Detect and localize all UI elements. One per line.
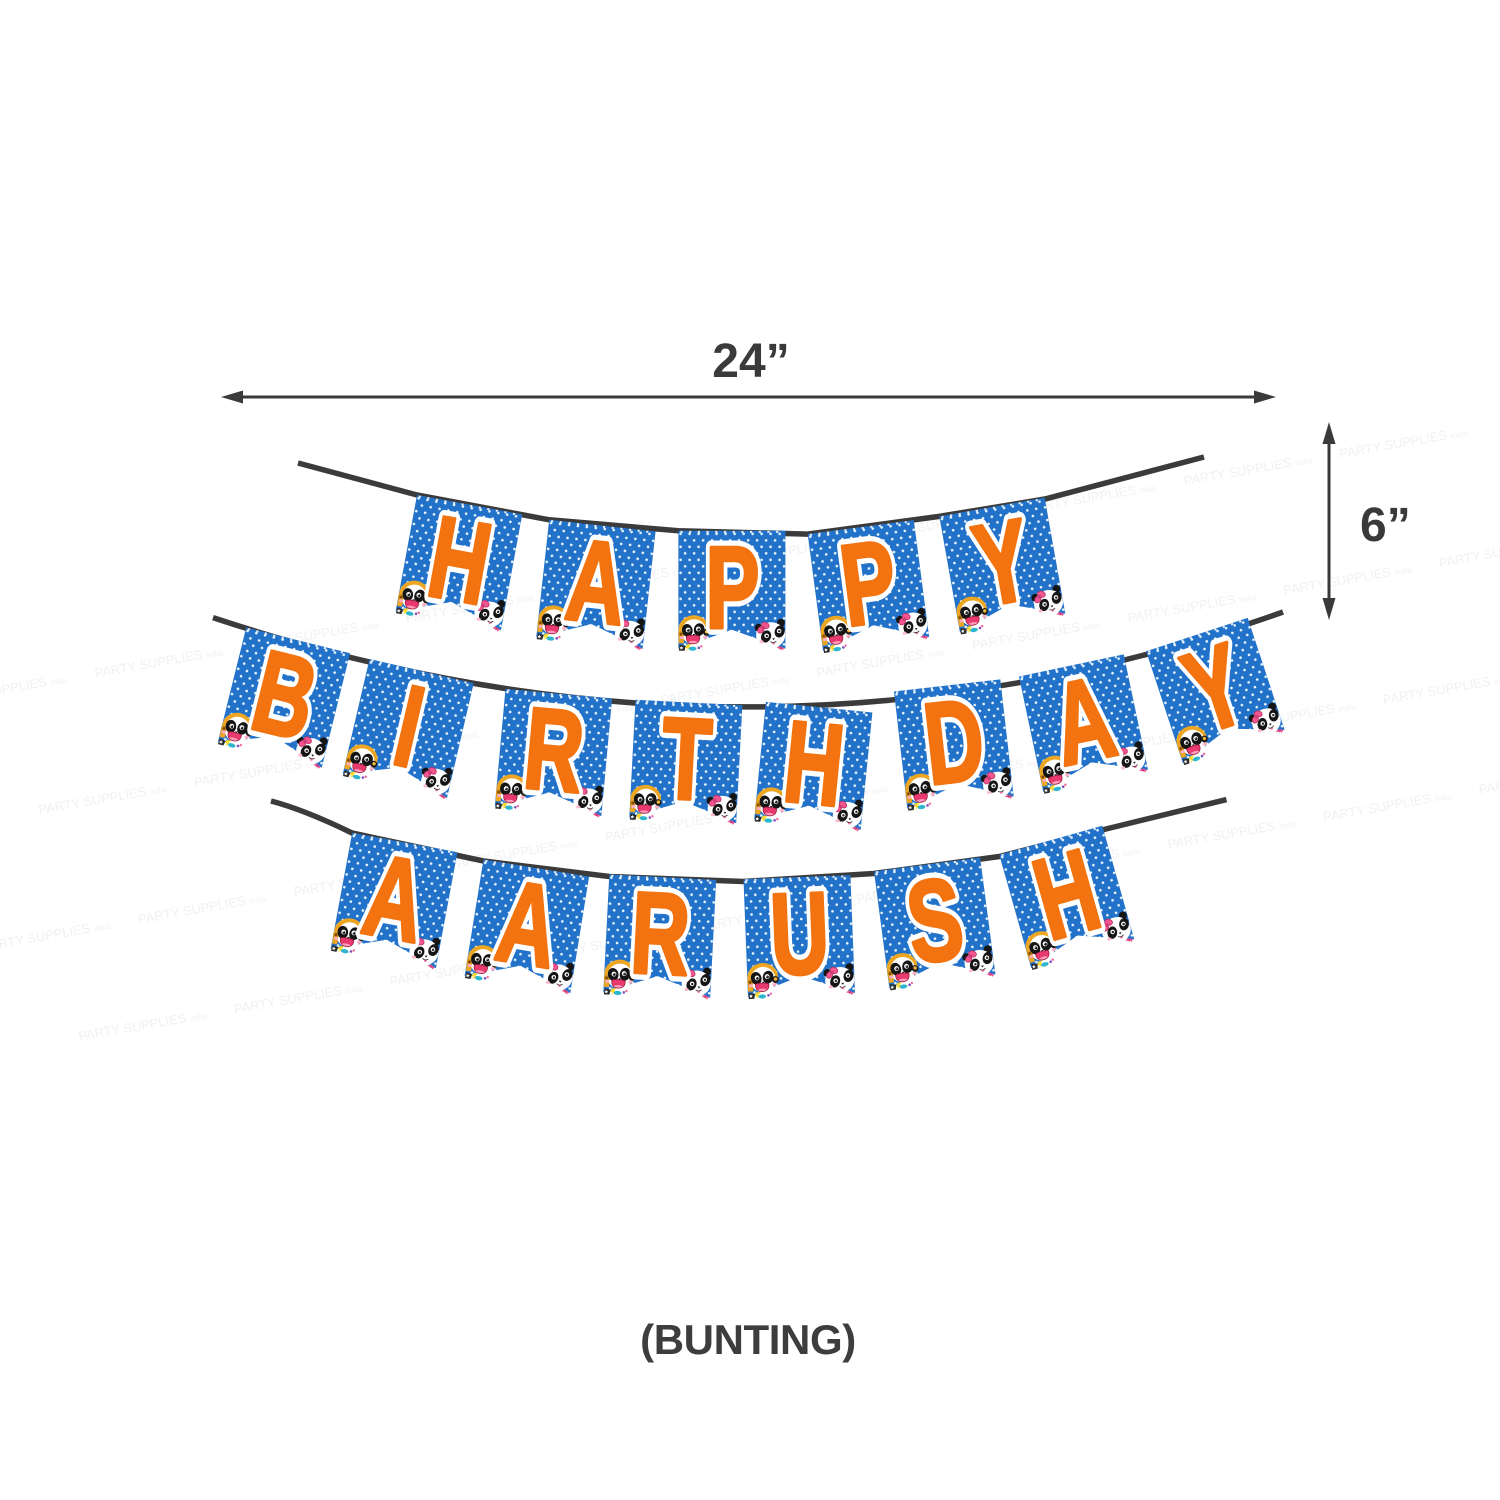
svg-text:U: U (768, 868, 832, 1000)
svg-text:T: T (658, 693, 714, 825)
svg-text:(BUNTING): (BUNTING) (640, 1316, 856, 1363)
svg-text:R: R (519, 683, 589, 818)
svg-text:24”: 24” (712, 335, 789, 388)
svg-text:6”: 6” (1360, 499, 1411, 552)
svg-text:P: P (705, 523, 759, 653)
svg-text:R: R (628, 868, 693, 1001)
